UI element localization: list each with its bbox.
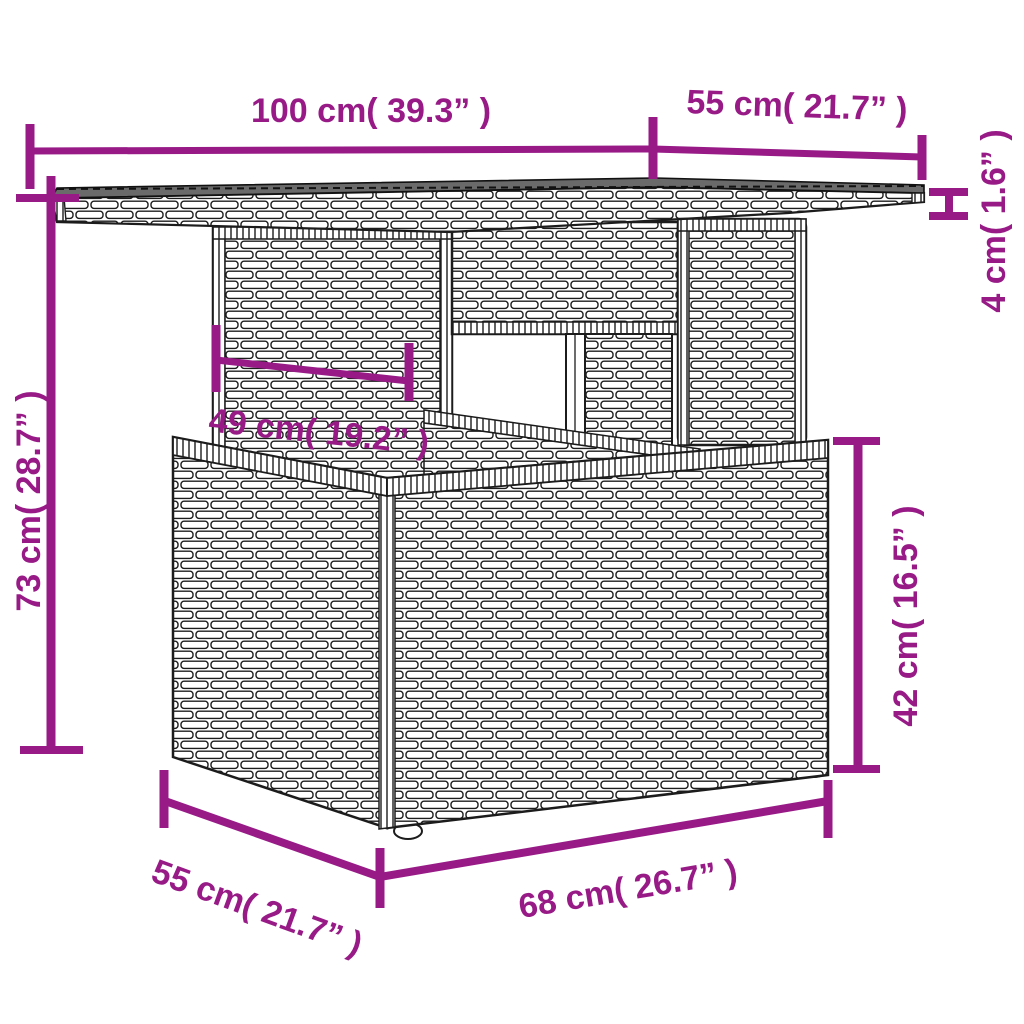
dimension-tabletop-thickness: 4 cm( 1.6” ) <box>929 129 1013 312</box>
dim-label-overall-height: 73 cm( 28.7” ) <box>10 390 48 611</box>
dim-label-base-height: 42 cm( 16.5” ) <box>887 505 925 726</box>
dimension-overall-height: 73 cm( 28.7” ) <box>10 176 83 750</box>
pedestal-right-column <box>678 219 806 445</box>
dim-label-tabletop-depth: 55 cm( 21.7” ) <box>686 83 908 129</box>
base-front-face <box>387 440 828 828</box>
pedestal-upper-band <box>452 222 678 334</box>
base-corner-coil <box>379 477 395 829</box>
dimension-tabletop-depth: 55 cm( 21.7” ) <box>653 83 922 180</box>
dim-label-base-depth: 55 cm( 21.7” ) <box>147 852 368 963</box>
base-left-face <box>173 437 387 828</box>
dim-label-tabletop-length: 100 cm( 39.3” ) <box>251 92 491 130</box>
dim-label-base-length: 68 cm( 26.7” ) <box>516 852 740 926</box>
dimension-tabletop-length: 100 cm( 39.3” ) <box>30 92 653 189</box>
product-dimension-diagram: 100 cm( 39.3” ) 55 cm( 21.7” ) 4 cm( 1.6… <box>0 0 1024 1024</box>
table-illustration <box>52 178 924 839</box>
dim-label-tabletop-thickness: 4 cm( 1.6” ) <box>975 129 1013 312</box>
base-box <box>173 410 828 839</box>
dimension-base-height: 42 cm( 16.5” ) <box>833 441 925 769</box>
